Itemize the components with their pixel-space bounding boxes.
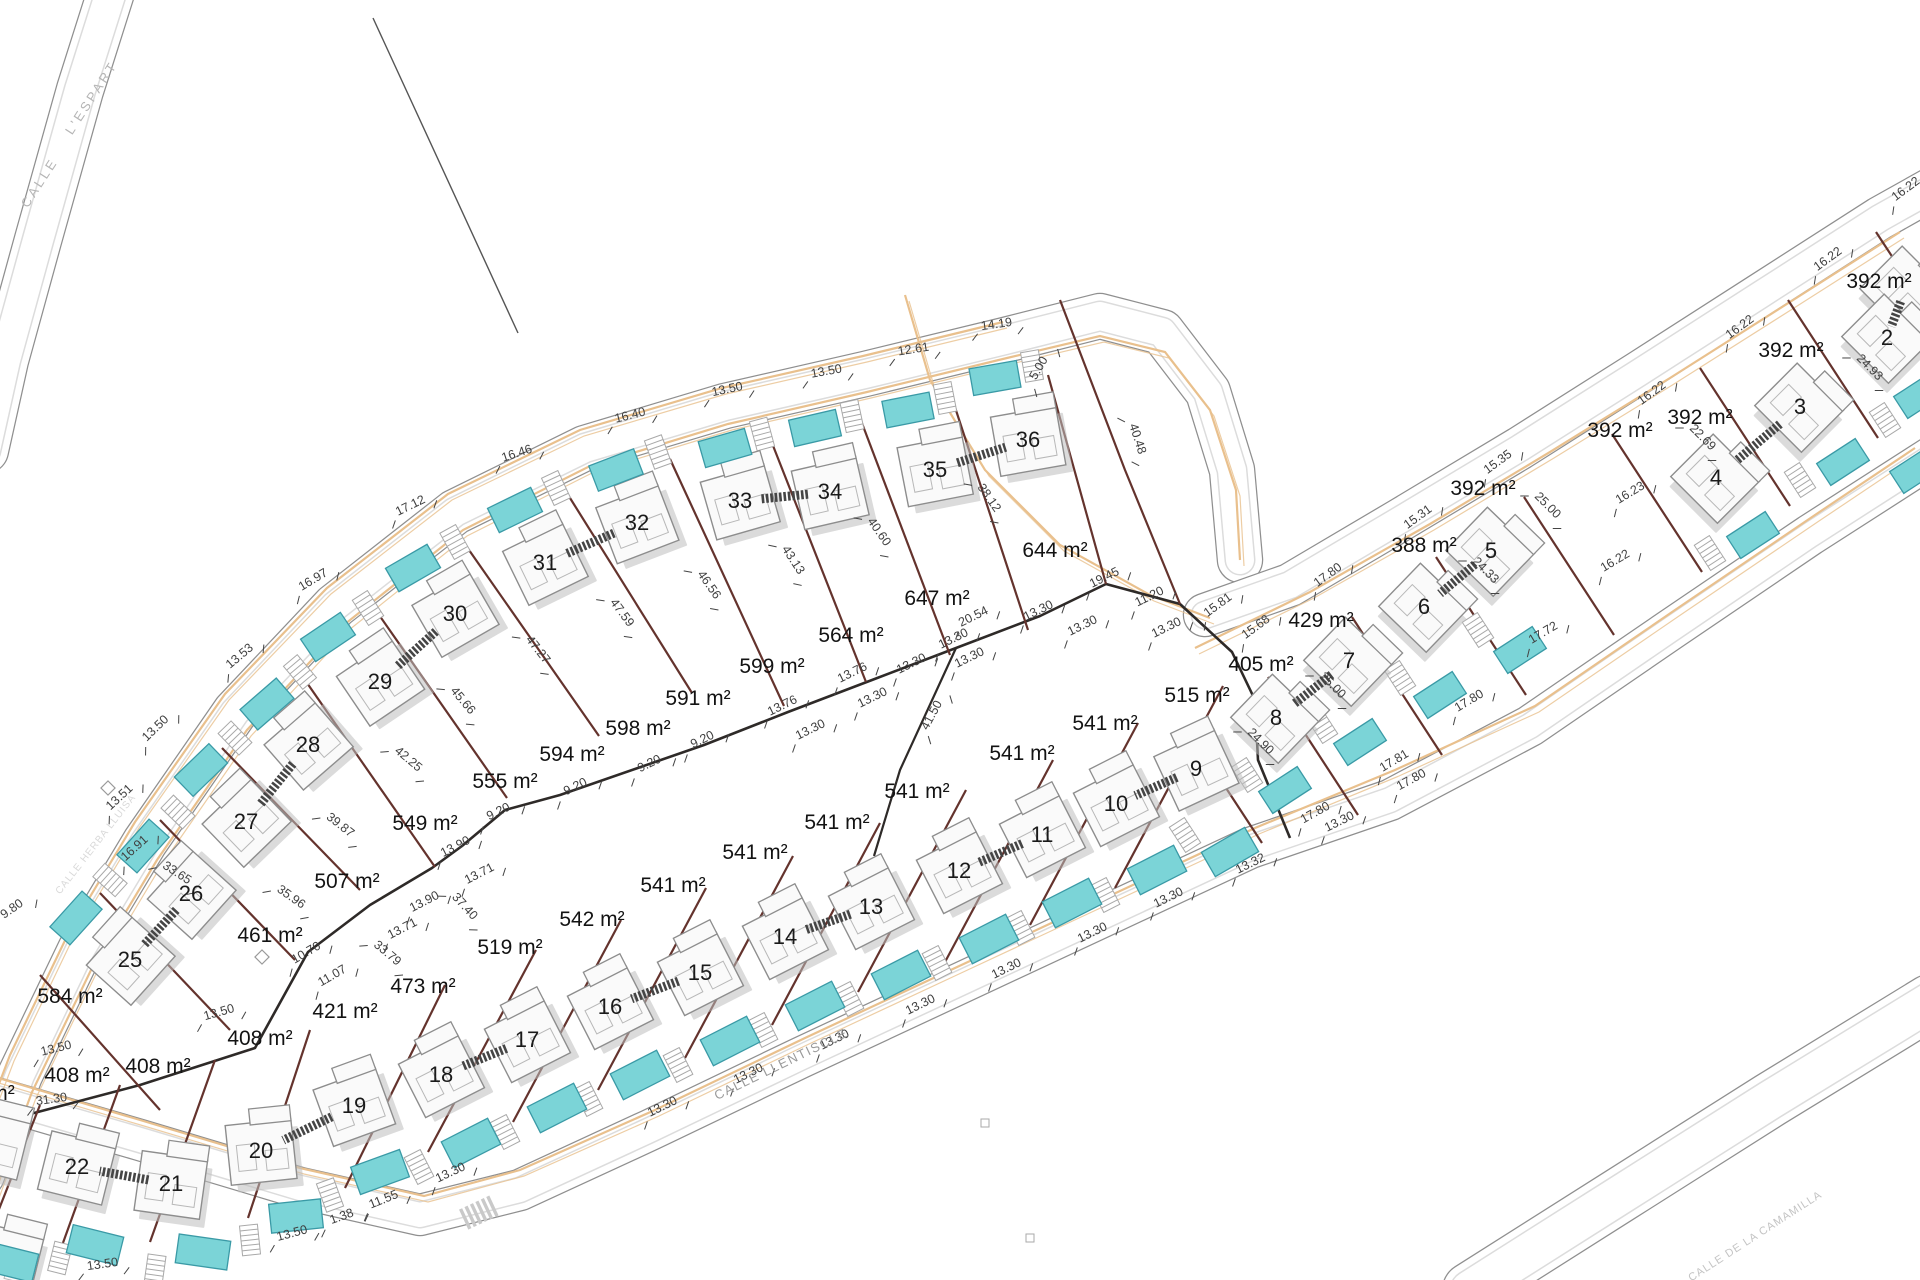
area-label: 392 m² <box>1587 419 1652 442</box>
area-label: 555 m² <box>472 770 537 793</box>
plot-number: 6 <box>1418 594 1430 619</box>
plot-number: 5 <box>1485 538 1497 563</box>
area-label: 599 m² <box>739 655 804 678</box>
area-label: 388 m² <box>1391 534 1456 557</box>
area-label: 541 m² <box>804 811 869 834</box>
plot-number: 2 <box>1881 325 1893 350</box>
area-label: 392 m² <box>1758 339 1823 362</box>
plot-number: 4 <box>1710 465 1722 490</box>
area-label: 507 m² <box>314 870 379 893</box>
driveway-hatch <box>239 1224 260 1256</box>
plot-number: 27 <box>234 809 258 834</box>
plot-number: 10 <box>1104 791 1128 816</box>
plot-number: 31 <box>533 550 557 575</box>
plot-number: 14 <box>773 924 797 949</box>
plot-number: 15 <box>688 960 712 985</box>
plot-number: 34 <box>818 479 842 504</box>
plot-number: 21 <box>159 1171 183 1196</box>
plot-number: 18 <box>429 1062 453 1087</box>
plot-number: 11 <box>1031 822 1054 847</box>
plot-number: 25 <box>118 947 142 972</box>
area-label: 405 m² <box>1228 653 1293 676</box>
plot-number: 33 <box>728 488 752 513</box>
site-plan-canvas: 13.5031.3013.5013.509.8016.9113.5113.501… <box>0 0 1920 1280</box>
area-label: 515 m² <box>1164 684 1229 707</box>
area-label: 549 m² <box>392 812 457 835</box>
plot-number: 26 <box>179 881 203 906</box>
area-label: 594 m² <box>539 743 604 766</box>
plot-number: 7 <box>1343 648 1355 673</box>
plot-number: 22 <box>65 1154 89 1179</box>
area-label: 461 m² <box>237 924 302 947</box>
area-label: 541 m² <box>989 742 1054 765</box>
area-label: 473 m² <box>390 975 455 998</box>
area-label: 519 m² <box>477 936 542 959</box>
area-label: 584 m² <box>37 985 102 1008</box>
plot-number: 9 <box>1190 756 1202 781</box>
driveway-hatch <box>144 1254 166 1280</box>
area-label: 647 m² <box>904 587 969 610</box>
plot-number: 12 <box>947 858 971 883</box>
area-label: 644 m² <box>1022 539 1087 562</box>
plot-number: 28 <box>296 732 320 757</box>
area-label: 408 m² <box>125 1055 190 1078</box>
plot-number: 16 <box>598 994 622 1019</box>
area-label: 392 m² <box>1846 270 1911 293</box>
site-plan: 13.5031.3013.5013.509.8016.9113.5113.501… <box>0 0 1920 1280</box>
area-label: 541 m² <box>640 874 705 897</box>
area-label: 598 m² <box>605 717 670 740</box>
area-label: 408 m² <box>227 1027 292 1050</box>
area-label: 429 m² <box>1288 609 1353 632</box>
area-label: 392 m² <box>1667 406 1732 429</box>
plot-number: 32 <box>625 510 649 535</box>
area-label: 541 m² <box>722 841 787 864</box>
plot-number: 17 <box>515 1027 539 1052</box>
plot-number: 30 <box>443 601 467 626</box>
area-label: 408 m² <box>0 1082 15 1105</box>
plot-number: 29 <box>368 669 392 694</box>
plot-number: 3 <box>1794 394 1806 419</box>
area-label: 564 m² <box>818 624 883 647</box>
plot-number: 36 <box>1016 427 1040 452</box>
area-label: 392 m² <box>1450 477 1515 500</box>
plot-number: 20 <box>249 1138 273 1163</box>
area-label: 541 m² <box>884 780 949 803</box>
plot-number: 13 <box>859 894 883 919</box>
area-label: 591 m² <box>665 687 730 710</box>
area-label: 542 m² <box>559 908 624 931</box>
plot-number: 8 <box>1270 705 1282 730</box>
plot-number: 35 <box>923 457 947 482</box>
area-label: 408 m² <box>44 1064 109 1087</box>
area-label: 421 m² <box>312 1000 377 1023</box>
area-label: 541 m² <box>1072 712 1137 735</box>
plot-number: 19 <box>342 1093 366 1118</box>
